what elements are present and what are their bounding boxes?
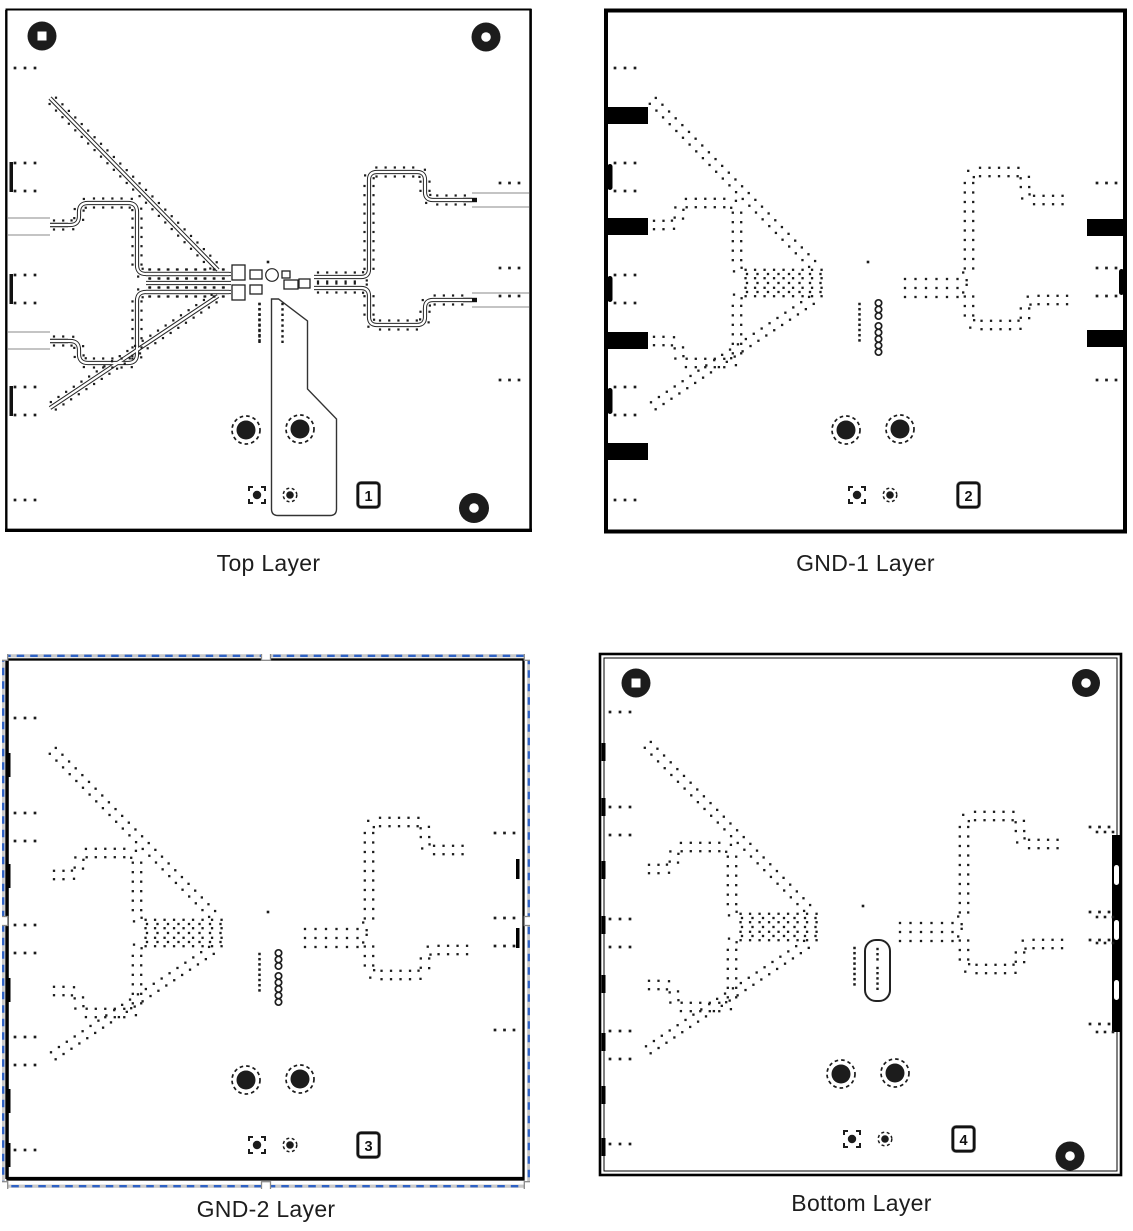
layer-number-badge-4: 4 bbox=[952, 1126, 976, 1153]
pcb-layer-figure: 1 2 3 4 Top Layer GND-1 Layer GND-2 Laye… bbox=[0, 0, 1133, 1231]
pcb-panel-gnd2-layer-selected[interactable]: 3 bbox=[2, 654, 530, 1189]
caption-gnd1-layer: GND-1 Layer bbox=[603, 550, 1128, 577]
pcb-panel-top-layer[interactable]: 1 bbox=[5, 8, 532, 532]
gnd2-layer-graphic: 3 bbox=[2, 654, 530, 1189]
layer-number-badge-1: 1 bbox=[357, 482, 381, 509]
layer-number-badge-3: 3 bbox=[357, 1132, 381, 1159]
selection-handle-7[interactable] bbox=[524, 1182, 530, 1189]
gnd1-layer-graphic: 2 bbox=[603, 8, 1128, 535]
svg-text:1: 1 bbox=[364, 489, 372, 505]
selection-handle-5[interactable] bbox=[2, 1182, 8, 1189]
bottom-layer-graphic: 4 bbox=[598, 652, 1125, 1178]
caption-bottom-layer: Bottom Layer bbox=[598, 1190, 1125, 1217]
selection-handle-4[interactable] bbox=[524, 917, 530, 926]
top-layer-graphic: 1 bbox=[5, 8, 532, 532]
pcb-panel-bottom-layer[interactable]: 4 bbox=[598, 652, 1125, 1178]
selection-handle-1[interactable] bbox=[262, 654, 271, 660]
layer-number-badge-2: 2 bbox=[957, 482, 981, 509]
pcb-panel-gnd1-layer[interactable]: 2 bbox=[603, 8, 1128, 535]
selection-handle-0[interactable] bbox=[2, 654, 8, 660]
caption-gnd2-layer: GND-2 Layer bbox=[2, 1196, 530, 1223]
selection-handle-2[interactable] bbox=[524, 654, 530, 660]
selection-handle-3[interactable] bbox=[2, 917, 8, 926]
svg-text:3: 3 bbox=[364, 1139, 372, 1155]
svg-text:4: 4 bbox=[959, 1133, 967, 1149]
caption-top-layer: Top Layer bbox=[5, 550, 532, 577]
svg-text:2: 2 bbox=[964, 489, 972, 505]
selection-handle-6[interactable] bbox=[262, 1182, 271, 1189]
